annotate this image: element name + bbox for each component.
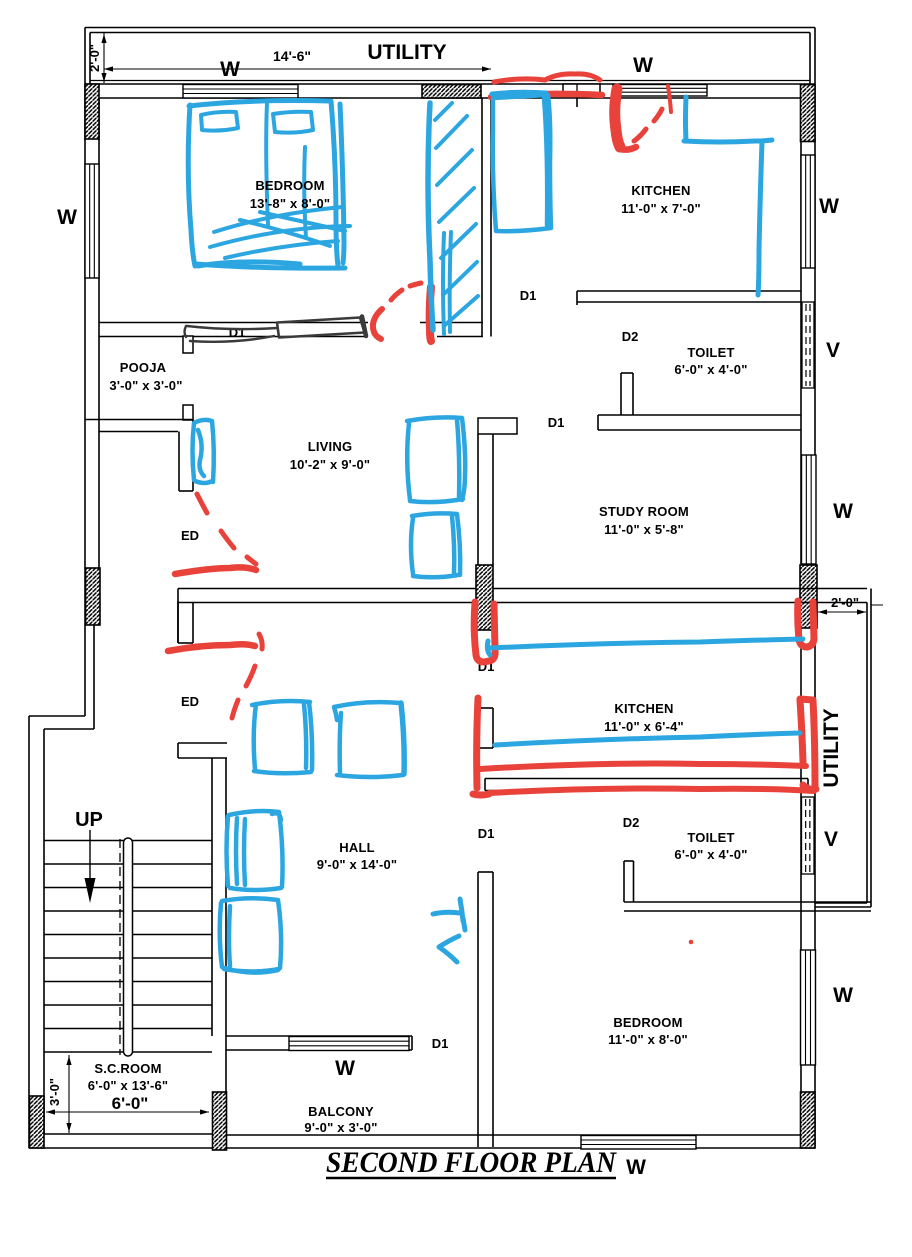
svg-text:HALL: HALL: [339, 840, 374, 855]
svg-text:14'-6": 14'-6": [273, 48, 311, 64]
svg-text:BEDROOM: BEDROOM: [255, 178, 324, 193]
svg-text:TOILET: TOILET: [687, 830, 734, 845]
svg-text:UTILITY: UTILITY: [367, 41, 446, 64]
svg-text:11'-0" x 5'-8": 11'-0" x 5'-8": [604, 522, 684, 537]
svg-text:6'-0": 6'-0": [112, 1094, 149, 1113]
svg-text:D1: D1: [229, 325, 246, 340]
svg-text:11'-0" x 8'-0": 11'-0" x 8'-0": [608, 1032, 688, 1047]
svg-text:UP: UP: [75, 809, 103, 831]
svg-text:BEDROOM: BEDROOM: [613, 1015, 682, 1030]
svg-text:10'-2" x 9'-0": 10'-2" x 9'-0": [290, 457, 371, 472]
svg-text:9'-0" x 3'-0": 9'-0" x 3'-0": [304, 1120, 377, 1135]
svg-text:KITCHEN: KITCHEN: [631, 183, 690, 198]
svg-text:UTILITY: UTILITY: [820, 708, 843, 787]
svg-text:TOILET: TOILET: [687, 345, 734, 360]
svg-text:V: V: [824, 828, 838, 851]
svg-text:W: W: [335, 1057, 355, 1080]
svg-text:2'-0": 2'-0": [831, 595, 859, 610]
svg-text:V: V: [826, 339, 840, 362]
svg-text:S.C.ROOM: S.C.ROOM: [94, 1061, 161, 1076]
svg-text:LIVING: LIVING: [308, 439, 353, 454]
svg-text:BALCONY: BALCONY: [308, 1104, 374, 1119]
svg-text:3'-0" x 3'-0": 3'-0" x 3'-0": [109, 378, 182, 393]
svg-text:D1: D1: [548, 415, 565, 430]
svg-text:W: W: [819, 195, 839, 218]
svg-text:6'-0" x 13'-6": 6'-0" x 13'-6": [88, 1078, 169, 1093]
svg-text:W: W: [57, 206, 77, 229]
svg-text:D1: D1: [432, 1036, 449, 1051]
svg-text:11'-0" x 6'-4": 11'-0" x 6'-4": [604, 719, 684, 734]
svg-text:6'-0" x 4'-0": 6'-0" x 4'-0": [674, 362, 747, 377]
svg-text:SECOND FLOOR PLAN: SECOND FLOOR PLAN: [326, 1146, 617, 1179]
svg-text:11'-0" x 7'-0": 11'-0" x 7'-0": [621, 201, 701, 216]
svg-text:2'-0": 2'-0": [87, 44, 102, 72]
svg-text:W: W: [220, 58, 240, 81]
svg-text:D2: D2: [622, 329, 639, 344]
svg-text:STUDY ROOM: STUDY ROOM: [599, 504, 689, 519]
svg-text:3'-0": 3'-0": [47, 1078, 62, 1106]
svg-text:KITCHEN: KITCHEN: [614, 701, 673, 716]
svg-text:D1: D1: [520, 288, 537, 303]
svg-text:W: W: [833, 984, 853, 1007]
svg-text:D2: D2: [623, 815, 640, 830]
svg-text:6'-0" x 4'-0": 6'-0" x 4'-0": [674, 847, 747, 862]
svg-text:ED: ED: [181, 528, 199, 543]
svg-text:W: W: [833, 500, 853, 523]
svg-text:POOJA: POOJA: [120, 360, 167, 375]
svg-text:ED: ED: [181, 694, 199, 709]
svg-text:W: W: [626, 1156, 646, 1179]
svg-text:D1: D1: [478, 826, 495, 841]
svg-text:13'-8" x 8'-0": 13'-8" x 8'-0": [250, 196, 331, 211]
svg-text:W: W: [633, 54, 653, 77]
svg-text:9'-0" x 14'-0": 9'-0" x 14'-0": [317, 857, 398, 872]
